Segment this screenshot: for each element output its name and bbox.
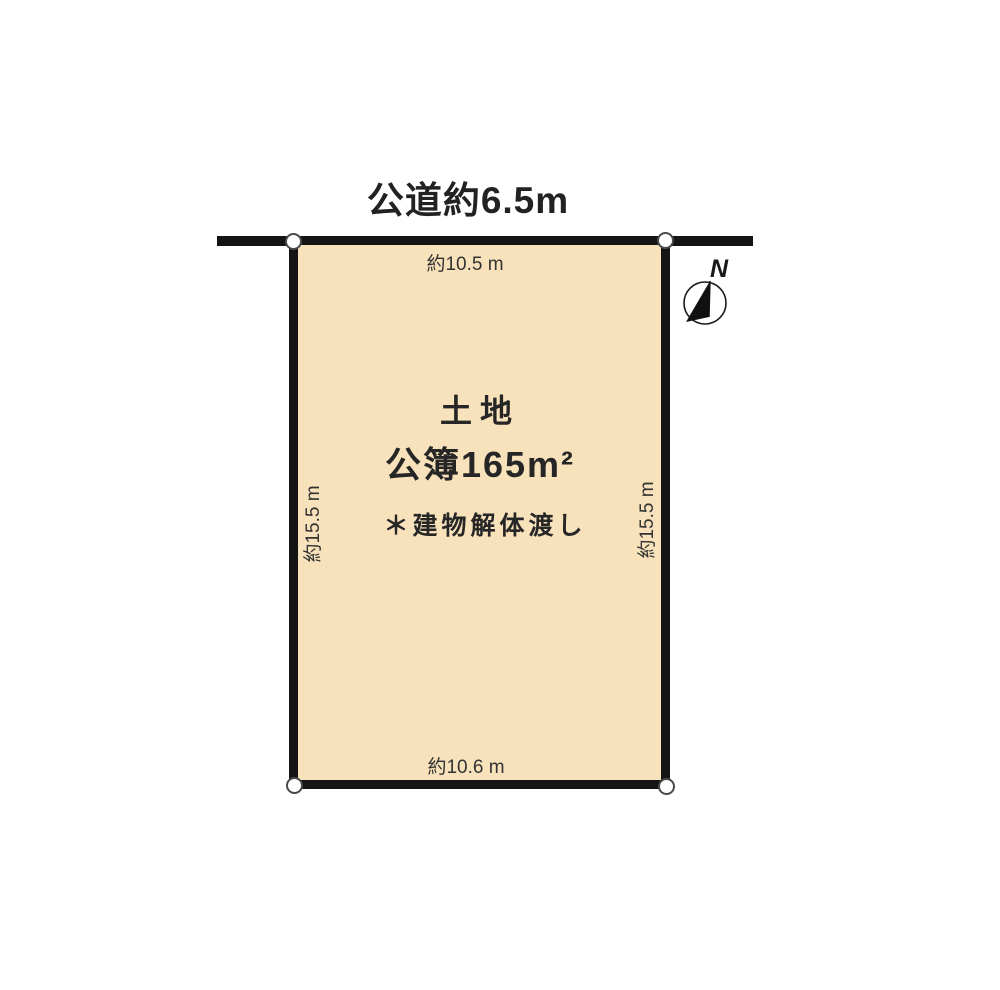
boundary-point-bottom-right <box>658 778 675 795</box>
bottom-dimension-label: 約10.6 m <box>366 752 566 779</box>
compass: N <box>670 253 750 337</box>
boundary-point-top-right <box>657 232 674 249</box>
plot-note: ＊建物解体渡し <box>310 506 660 542</box>
land-plot-diagram: 公道約6.5m 約10.5 m 約15.5 m 約15.5 m 約10.6 m … <box>0 0 1000 990</box>
plot-area-value: 公簿165m² <box>330 436 630 488</box>
plot-title: 土地 <box>330 386 630 432</box>
boundary-point-top-left <box>285 233 302 250</box>
boundary-point-bottom-left <box>286 777 303 794</box>
north-label: N <box>710 255 729 283</box>
north-arrow-icon <box>684 281 726 324</box>
top-dimension-label: 約10.5 m <box>365 249 565 276</box>
road-width-label: 公道約6.5m <box>218 170 718 224</box>
road-line-right <box>662 236 753 246</box>
